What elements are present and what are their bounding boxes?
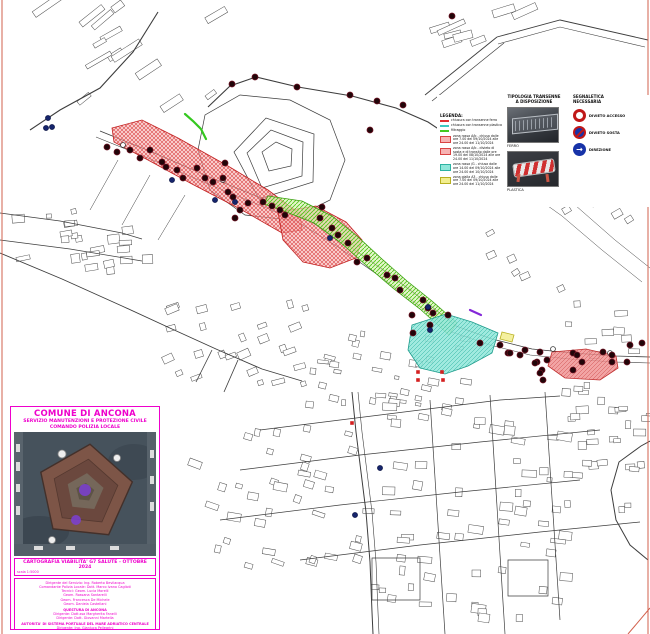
map-building [614, 438, 621, 442]
map-building [611, 208, 623, 219]
map-building [254, 429, 260, 437]
barrier-dot [354, 259, 360, 265]
map-building [629, 466, 639, 472]
barrier-dot [374, 98, 380, 104]
map-building [415, 395, 422, 401]
map-zone-zona-rossa-g-cyan [408, 314, 498, 374]
map-road [498, 27, 645, 47]
legend-item: chiusura con transenne plastica [440, 124, 502, 128]
map-building [486, 229, 495, 237]
plastica-label: PLASTICA [507, 188, 561, 192]
map-building [348, 334, 356, 342]
map-building [602, 329, 614, 336]
poi-marker [49, 537, 56, 544]
map-building [387, 595, 396, 603]
barrier-dot [319, 204, 325, 210]
barrier-dot [230, 194, 236, 200]
map-building [352, 554, 362, 564]
map-building [390, 511, 401, 515]
barrier-dot [232, 215, 238, 221]
map-road [545, 392, 560, 620]
barrier-dot [537, 349, 543, 355]
barrier-dot [282, 212, 288, 218]
barrier-dot [347, 92, 353, 98]
map-building [237, 348, 251, 360]
title-box: COMUNE DI ANCONA SERVIZIO MANUTENZIONI E… [10, 406, 160, 630]
map-building [633, 429, 645, 436]
map-building [562, 388, 571, 396]
map-building [565, 322, 571, 327]
map-building [46, 214, 51, 218]
police-subtitle: COMANDO POLIZIA LOCALE [14, 425, 156, 431]
divieto-accesso-sign-icon [573, 109, 586, 122]
map-building [119, 240, 132, 245]
legend-zone-swatch [440, 148, 451, 155]
legend-item: zona rossa A/b - chiusa dalle ore 7.00 d… [440, 135, 502, 146]
map-building [500, 502, 513, 511]
barrier-dot [544, 357, 550, 363]
legend-item-label: zona gialla A3 - chiusa dalle ore 7.00 d… [453, 176, 502, 187]
map-building [564, 471, 573, 477]
map-building [266, 448, 273, 455]
legend-transenne-header: TIPOLOGIA TRANSENNE A DISPOSIZIONE [507, 95, 561, 104]
transenna-plastica-photo [507, 151, 559, 187]
direzione-sign-icon [573, 143, 586, 156]
legend-item: filtraggio [440, 129, 502, 133]
map-building [71, 208, 77, 214]
barrier-dot [364, 255, 370, 261]
barrier-dot [579, 359, 585, 365]
map-building [499, 519, 510, 525]
map-building [244, 433, 253, 441]
blue-dot [352, 512, 357, 517]
blue-dot [427, 327, 432, 332]
map-building [305, 401, 313, 408]
map-building [273, 428, 281, 436]
map-building [244, 562, 253, 569]
map-building [475, 418, 486, 425]
map-building [560, 573, 573, 582]
map-building [597, 459, 608, 466]
map-building [472, 570, 481, 577]
map-building [570, 413, 580, 420]
map-building [294, 363, 306, 371]
map-building [511, 268, 520, 276]
sign-list: DIVIETO ACCESSODIVIETO SOSTADIREZIONE [573, 109, 649, 156]
map-building [247, 492, 259, 501]
map-scale: scala 1:5000 [17, 570, 153, 574]
barrier-dot [507, 350, 513, 356]
map-building [424, 573, 436, 582]
blue-dot [232, 199, 237, 204]
barrier-dot [345, 240, 351, 246]
map-building [521, 542, 530, 547]
barrier-dot [277, 207, 283, 213]
map-building [85, 51, 112, 69]
map-building [582, 460, 591, 466]
barrier-dot [624, 359, 630, 365]
map-building [214, 545, 221, 553]
map-building [625, 503, 631, 508]
blue-dot [212, 197, 217, 202]
legend-zone-swatch [440, 136, 451, 143]
barrier-dot [269, 203, 275, 209]
map-building [135, 59, 161, 80]
map-building [329, 394, 339, 402]
barrier-dot [400, 102, 406, 108]
map-road [432, 43, 504, 101]
map-building [455, 533, 464, 540]
blue-dot [169, 177, 174, 182]
map-building [460, 378, 471, 385]
map-building [504, 426, 515, 436]
map-building [120, 256, 132, 264]
map-building [318, 382, 326, 389]
sign-label: DIVIETO ACCESSO [589, 114, 625, 118]
legend-items: chiusura con transenne ferrochiusura con… [440, 119, 502, 187]
map-building [258, 333, 270, 344]
map-building [247, 367, 259, 377]
map-building [93, 38, 107, 49]
map-building [478, 613, 490, 623]
barrier-dot [294, 84, 300, 90]
map-building [205, 89, 217, 99]
map-building [196, 304, 208, 313]
barrier-dot [202, 175, 208, 181]
map-building [418, 413, 429, 421]
red-square-marker [416, 370, 420, 374]
barrier-dot [137, 155, 143, 161]
barrier-dot [627, 342, 633, 348]
map-road [90, 160, 118, 210]
map-building [288, 322, 301, 333]
barrier-dot [600, 349, 606, 355]
map-building [223, 537, 231, 544]
municipality-title: COMUNE DI ANCONA [14, 409, 156, 419]
white-dot [121, 143, 126, 148]
map-building [382, 403, 397, 411]
map-building [262, 548, 275, 556]
map-building [355, 536, 361, 543]
barrier-dot [497, 342, 503, 348]
legend-item-label: chiusura con transenne plastica [451, 124, 502, 128]
map-building [552, 506, 561, 513]
map-building [538, 521, 549, 527]
barrier-dot [420, 297, 426, 303]
poi-marker [114, 455, 121, 462]
map-road [158, 195, 185, 240]
map-building [257, 322, 267, 329]
barrier-dot [225, 189, 231, 195]
map-building [199, 323, 206, 331]
map-building [516, 615, 523, 622]
map-building [514, 506, 527, 516]
barrier-dot [409, 312, 415, 318]
barrier-dot [477, 340, 483, 346]
map-road [224, 360, 238, 392]
map-building [334, 369, 342, 374]
map-building [552, 597, 563, 605]
map-road [0, 253, 302, 381]
barrier-dot [639, 340, 645, 346]
map-road [122, 175, 150, 225]
barrier-dot [114, 149, 120, 155]
map-building [399, 566, 405, 575]
map-building [498, 567, 506, 574]
map-building [397, 537, 410, 543]
map-building [117, 245, 130, 253]
credit-line: Dirigente: Ing. Gianluca Pellegrini [16, 626, 154, 630]
blue-dot [49, 124, 54, 129]
map-building [492, 4, 516, 18]
map-building [584, 382, 590, 388]
barrier-dot [159, 159, 165, 165]
map-building [329, 361, 339, 368]
map-building [393, 462, 408, 471]
blue-dot [43, 125, 48, 130]
map-building [540, 468, 549, 475]
barrier-dot [237, 207, 243, 213]
map-building [227, 512, 242, 522]
legend-item-label: zona rossa A/b - chiusa dalle ore 7.00 d… [453, 135, 502, 146]
map-building [363, 508, 374, 513]
barrier-dot [163, 164, 169, 170]
map-building [300, 462, 309, 472]
map-building [486, 250, 497, 260]
map-building [300, 381, 306, 387]
credits-box: Dirigente del Servizio: Ing. Roberto Bev… [14, 578, 156, 630]
map-zone-zona-gialla [500, 332, 514, 342]
barrier-dot [147, 147, 153, 153]
blue-dot [45, 115, 50, 120]
map-building [194, 349, 204, 358]
sign-row: DIVIETO SOSTA [573, 126, 649, 139]
legend-item-label: zona rossa /G - chiusa dalle ore 14.00 d… [453, 163, 502, 174]
map-building [287, 300, 294, 309]
map-building [408, 584, 414, 591]
barrier-dot [449, 13, 455, 19]
poi-marker [58, 450, 66, 458]
map-building [71, 253, 81, 263]
blue-dot [327, 235, 332, 240]
map-pin-marker [79, 484, 91, 496]
barrier-dot [609, 359, 615, 365]
map-building [271, 558, 284, 566]
red-square-marker [441, 378, 445, 382]
map-building [519, 271, 530, 280]
barrier-dot [574, 352, 580, 358]
map-building [428, 378, 440, 386]
map-building [415, 461, 427, 468]
map-building [574, 386, 583, 392]
map-building [303, 425, 311, 433]
map-building [576, 406, 589, 414]
legend-line-swatch [440, 125, 449, 127]
map-building [61, 236, 69, 243]
map-building [578, 442, 586, 450]
map-building [205, 6, 228, 23]
map-building [515, 489, 521, 496]
map-building [314, 470, 327, 480]
map-caption: CARTOGRAFIA VIABILITA' G7 SALUTE - OTTOB… [17, 560, 153, 570]
map-building [111, 0, 125, 13]
map-building [511, 3, 537, 20]
barrier-dot [335, 232, 341, 238]
map-pin-marker [71, 515, 81, 525]
credit-line: Dirigente: Dott. Giovanni Martella [16, 616, 154, 620]
blue-dot [425, 304, 430, 309]
map-building [622, 335, 632, 342]
map-building [235, 483, 242, 489]
barrier-dot [252, 74, 258, 80]
map-building [107, 234, 120, 244]
map-building [507, 254, 517, 263]
map-road [611, 441, 650, 560]
purple-segment [470, 310, 481, 315]
map-building [218, 482, 227, 492]
map-page: LEGENDA: chiusura con transenne ferrochi… [0, 0, 650, 634]
map-building [312, 510, 325, 518]
red-square-marker [440, 370, 444, 374]
map-building [302, 305, 309, 312]
map-building [85, 263, 98, 271]
barrier-dot [229, 81, 235, 87]
map-building [379, 588, 386, 593]
sheet-frame-line [628, 608, 650, 634]
map-building [142, 255, 153, 264]
map-building [468, 525, 484, 535]
map-building [254, 518, 266, 527]
barrier-dot [220, 175, 226, 181]
barrier-dot [367, 127, 373, 133]
map-building [293, 495, 302, 504]
map-building [489, 424, 505, 435]
map-building [557, 285, 566, 293]
map-building [598, 397, 605, 405]
barrier-dot [430, 310, 436, 316]
map-building [641, 416, 650, 422]
map-building [585, 339, 597, 345]
iron-barrier-icon [512, 114, 558, 135]
map-building [325, 486, 334, 493]
map-building [205, 501, 219, 511]
red-square-marker [350, 421, 354, 425]
barrier-dot [245, 200, 251, 206]
map-building [257, 380, 263, 386]
barrier-dot [397, 287, 403, 293]
barrier-dot [522, 347, 528, 353]
sign-label: DIREZIONE [589, 148, 611, 152]
map-building [310, 368, 316, 375]
barrier-dot [317, 215, 323, 221]
blue-dot [377, 465, 382, 470]
legend-item-label: chiusura con transenne ferro [451, 119, 497, 123]
credit-line: Geom. Daniela Castellani [16, 602, 154, 606]
map-building [448, 510, 459, 517]
legend-zone-swatch [440, 164, 451, 171]
legend-item-label: filtraggio [451, 129, 465, 133]
ferro-label: FERRO [507, 144, 561, 148]
barrier-dot [537, 370, 543, 376]
map-building [348, 446, 358, 455]
map-building [421, 385, 431, 392]
map-building [625, 421, 631, 429]
sign-row: DIREZIONE [573, 143, 649, 156]
map-building [162, 353, 175, 364]
legend-item: zona rossa /G - chiusa dalle ore 14.00 d… [440, 163, 502, 174]
map-building [619, 507, 625, 513]
legend-line-swatch [440, 130, 449, 132]
legend-item: zona rossa A/b - divieto di sosta e di t… [440, 147, 502, 162]
barrier-dot [260, 199, 266, 205]
map-building [565, 500, 571, 507]
map-building [349, 541, 362, 551]
map-building [400, 388, 409, 395]
map-building [546, 549, 556, 557]
barrier-dot [532, 360, 538, 366]
legend-segnaletica-header: SEGNALETICA NECESSARIA [573, 95, 649, 104]
legend-list: LEGENDA: chiusura con transenne ferrochi… [440, 113, 502, 188]
map-building [415, 402, 421, 406]
map-building [380, 351, 391, 360]
aerial-photo [14, 432, 156, 556]
legend-signage: SEGNALETICA NECESSARIA DIVIETO ACCESSODI… [573, 95, 649, 160]
white-dot [551, 347, 556, 352]
barrier-dot [384, 272, 390, 278]
legend-item: zona gialla A3 - chiusa dalle ore 7.00 d… [440, 176, 502, 187]
barrier-dot [392, 275, 398, 281]
red-square-marker [416, 378, 420, 382]
map-building [273, 482, 288, 492]
barrier-dot [174, 167, 180, 173]
map-road [430, 400, 445, 634]
map-building [341, 400, 345, 406]
barrier-dot [540, 377, 546, 383]
map-building [32, 0, 63, 17]
map-building [539, 586, 547, 594]
barrier-dot [127, 147, 133, 153]
map-building [547, 478, 552, 483]
map-building [391, 419, 401, 428]
map-building [624, 215, 633, 224]
sign-row: DIVIETO ACCESSO [573, 109, 649, 122]
legend-zone-swatch [440, 177, 451, 184]
map-caption-box: CARTOGRAFIA VIABILITA' G7 SALUTE - OTTOB… [14, 558, 156, 576]
map-building [344, 431, 352, 437]
service-subtitle: SERVIZIO MANUTENZIONI E PROTEZIONE CIVIL… [14, 419, 156, 425]
map-building [265, 508, 272, 517]
map-building [188, 458, 203, 469]
barrier-dot [410, 330, 416, 336]
map-building [230, 303, 240, 311]
map-building [523, 501, 530, 507]
legend-line-swatch [440, 120, 449, 122]
map-building [353, 353, 361, 360]
map-building [615, 310, 628, 316]
map-building [191, 374, 203, 382]
landmark-outline [262, 142, 292, 171]
legend-barrier-types: TIPOLOGIA TRANSENNE A DISPOSIZIONE FERRO… [507, 95, 561, 195]
landmark-outline [372, 558, 420, 600]
map-building [369, 398, 376, 405]
map-building [375, 393, 386, 398]
barrier-dot [329, 225, 335, 231]
map-building [160, 94, 183, 113]
legend-item: chiusura con transenne ferro [440, 119, 502, 123]
barrier-dot [104, 144, 110, 150]
barrier-dot [570, 367, 576, 373]
map-building [412, 480, 422, 490]
